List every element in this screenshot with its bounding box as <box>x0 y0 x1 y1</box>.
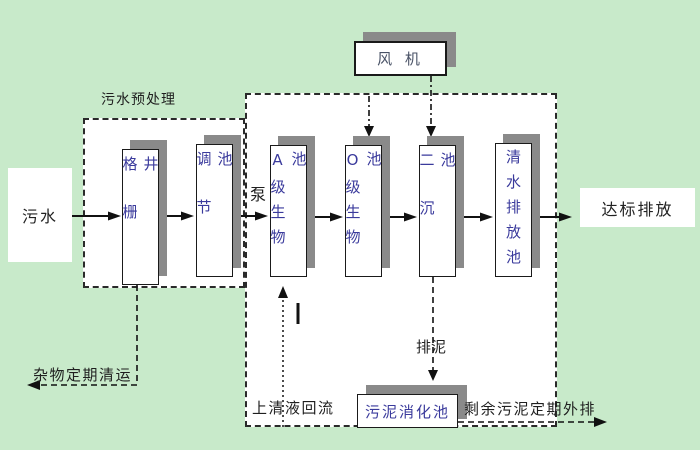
excess-sludge-label: 剩余污泥定期外排 <box>464 398 596 419</box>
standard-discharge-node: 达标排放 <box>580 188 695 227</box>
clear-water-discharge-label: 清水排放池 <box>503 144 524 276</box>
sewage-node: 污水 <box>8 168 72 262</box>
clear-water-discharge-node: 清水排放池 <box>495 143 532 277</box>
a-bio-tank-node: A级生物池 <box>270 145 307 277</box>
regulating-tank-node: 调节池 <box>196 144 233 277</box>
a-bio-tank-label: A级生物池 <box>270 146 307 276</box>
grid-well-node: 格栅井 <box>122 149 159 285</box>
fan-label: 风 机 <box>377 48 424 69</box>
pump-label: 泵 <box>250 181 266 205</box>
secondary-sedimentation-label: 二沉池 <box>419 146 456 276</box>
regulating-tank-label: 调节池 <box>196 145 233 276</box>
sludge-digestion-node: 污泥消化池 <box>357 394 458 428</box>
grid-well-label: 格栅井 <box>122 150 159 284</box>
standard-discharge-label: 达标排放 <box>601 196 673 220</box>
o-bio-tank-node: O级生物池 <box>345 145 382 277</box>
pretreatment-section-label: 污水预处理 <box>101 89 176 109</box>
o-bio-tank-label: O级生物池 <box>345 146 382 276</box>
fan-node: 风 机 <box>354 41 447 76</box>
process-flow-diagram: 污水 达标排放 风 机 格栅井 调节池 A级生物池 O级生物池 二沉池 清水排放… <box>0 0 700 450</box>
sludge-discharge-label: 排泥 <box>416 336 446 357</box>
sludge-digestion-label: 污泥消化池 <box>365 401 450 422</box>
supernatant-return-label: 上清液回流 <box>252 397 335 418</box>
secondary-sedimentation-node: 二沉池 <box>419 145 456 277</box>
sewage-label: 污水 <box>22 203 58 227</box>
debris-removal-label: 杂物定期清运 <box>33 364 132 385</box>
